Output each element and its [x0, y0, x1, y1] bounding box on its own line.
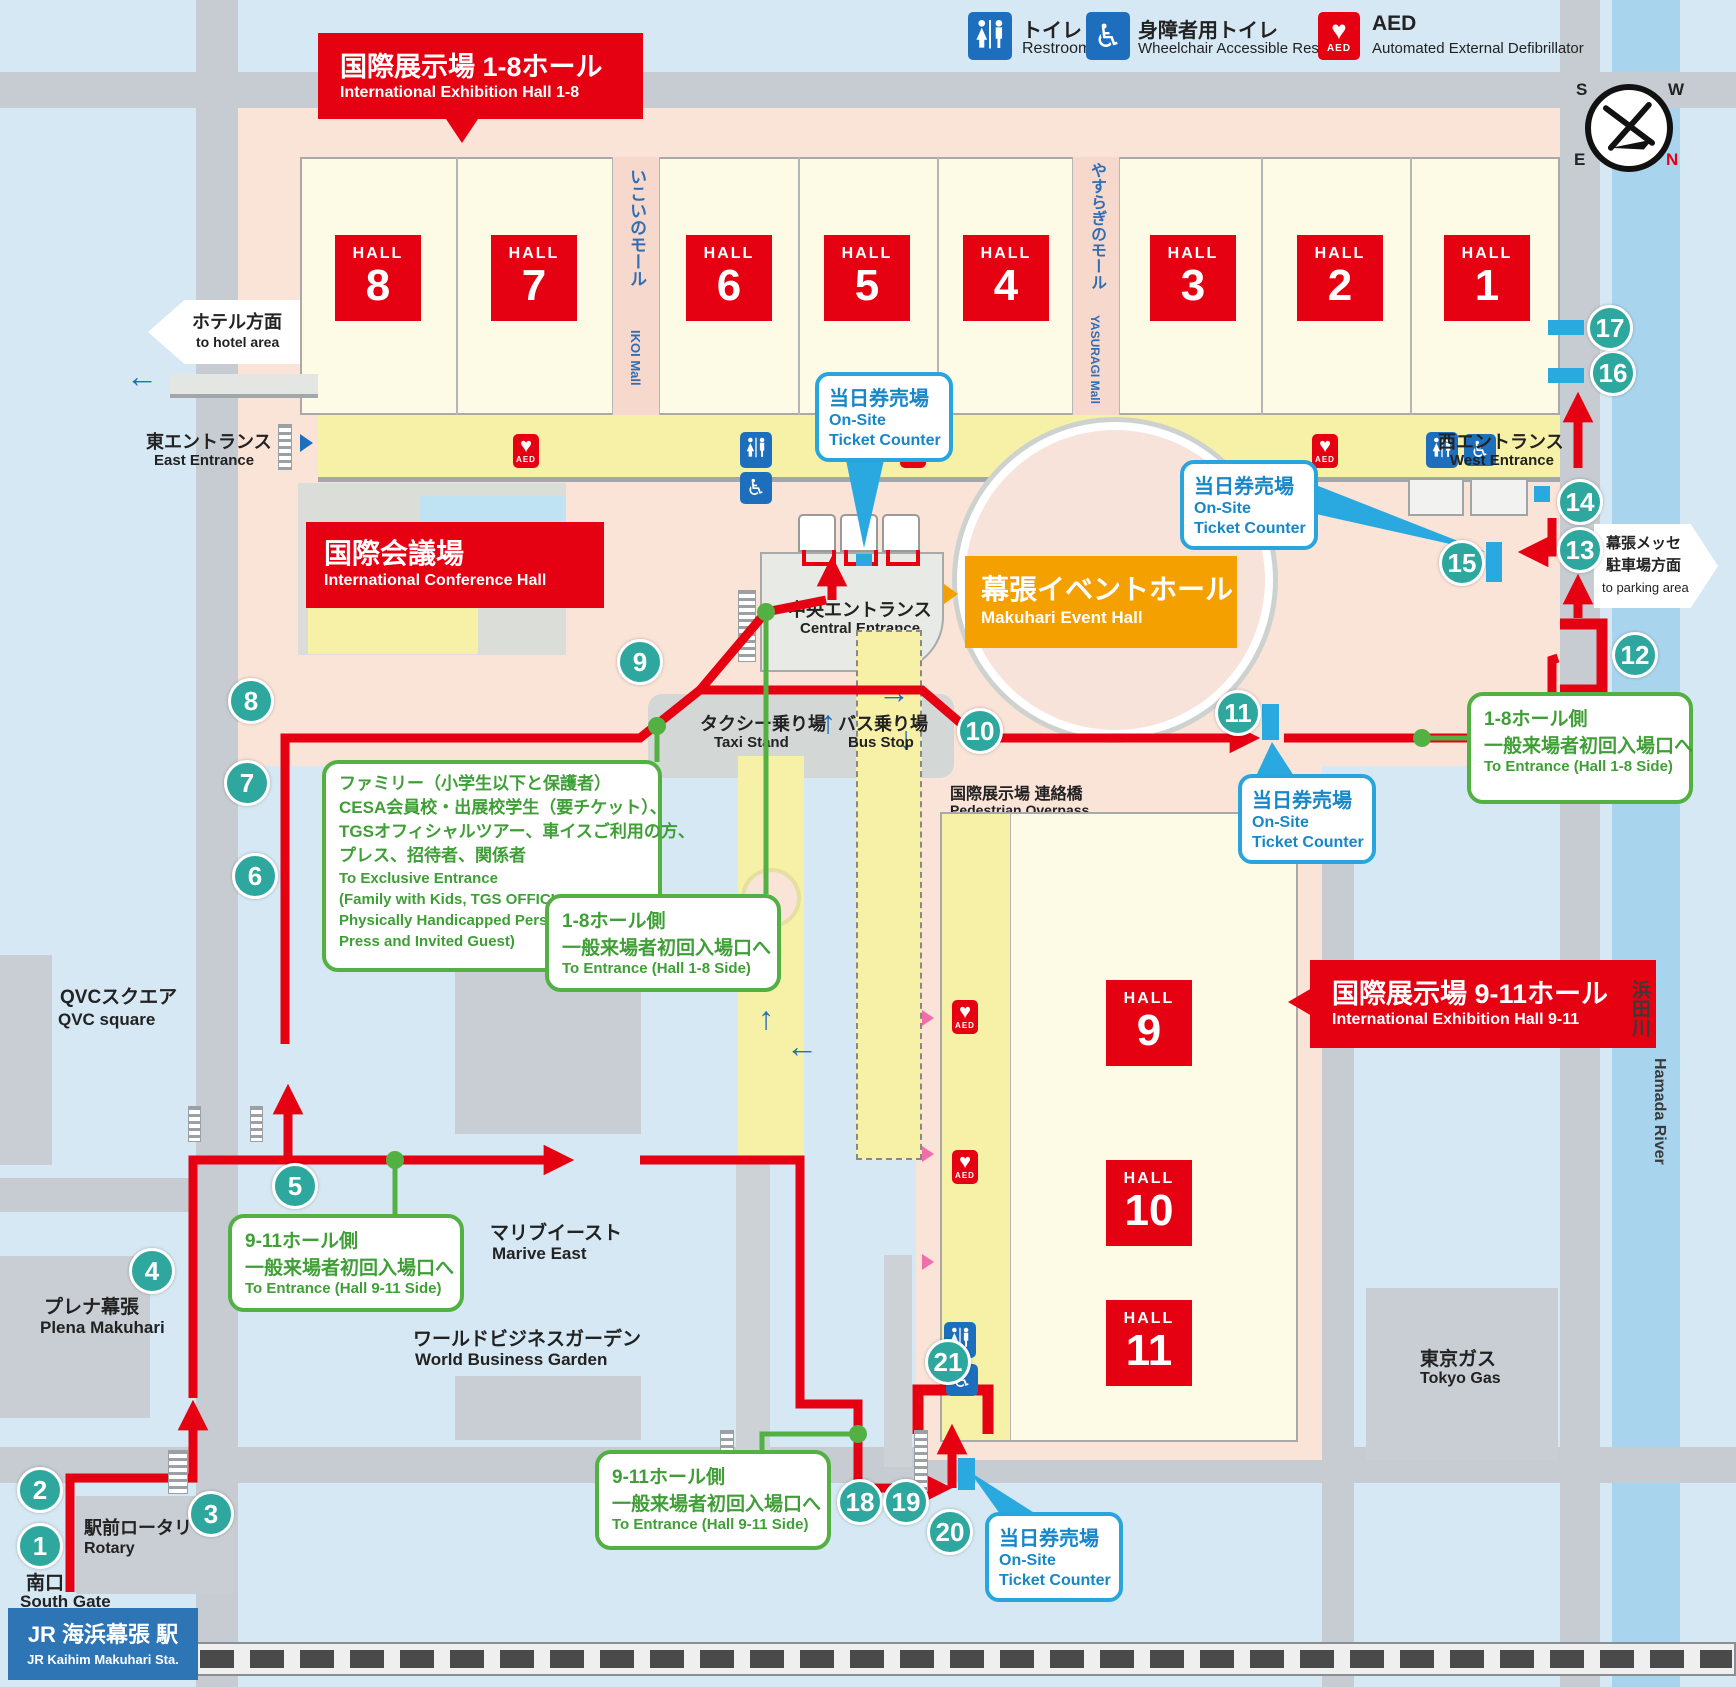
legend-restroom-label: トイレ: [1022, 14, 1082, 43]
route-marker-17: 17: [1587, 305, 1633, 351]
hall-7: HALL7: [491, 235, 577, 321]
route-marker-14: 14: [1557, 479, 1603, 525]
compass: [1585, 84, 1673, 172]
event-hall-pointer-icon: [944, 584, 958, 604]
ticket-booth: [958, 1458, 975, 1490]
marive-east-label-en: Marive East: [492, 1244, 587, 1264]
route-marker-3: 3: [188, 1491, 234, 1537]
legend-aed-label: AED: [1372, 12, 1416, 36]
walkway-east-column: [884, 1255, 912, 1467]
hotel-walkway: [170, 374, 318, 398]
ticket-booth: [1534, 486, 1550, 502]
hall911-banner: 国際展示場 9-11ホール International Exhibition H…: [1310, 960, 1656, 1048]
route-marker-15: 15: [1439, 540, 1485, 586]
hall-4: HALL4: [963, 235, 1049, 321]
route-marker-19: 19: [883, 1479, 929, 1525]
ticket-counter-callout-south: 当日券売場On-SiteTicket Counter: [985, 1512, 1123, 1602]
hall-2: HALL2: [1297, 235, 1383, 321]
route-marker-1: 1: [17, 1523, 63, 1569]
entrance-pointer-icon: [922, 1146, 934, 1162]
central-entrance-label: 中央エントランス: [788, 596, 932, 622]
entrance-hall911-box-south: 9-11ホール側一般来場者初回入場口へTo Entrance (Hall 9-1…: [595, 1450, 831, 1550]
central-stairs: [738, 590, 756, 662]
plena-label-en: Plena Makuhari: [40, 1318, 165, 1338]
route-marker-21: 21: [925, 1339, 971, 1385]
route-marker-7: 7: [224, 760, 270, 806]
route-marker-12: 12: [1612, 632, 1658, 678]
west-entrance-label-en: West Entrance: [1450, 452, 1554, 469]
ikoi-mall-label-en: IKOI Mall: [628, 330, 643, 386]
hotel-direction-sign: ホテル方面 to hotel area: [148, 300, 300, 364]
west-structure: [1470, 478, 1528, 516]
tokyo-gas-label: 東京ガス: [1420, 1344, 1496, 1371]
marive-east-label: マリブイースト: [490, 1218, 622, 1245]
route-marker-20: 20: [927, 1509, 973, 1555]
hall-6: HALL6: [686, 235, 772, 321]
wbg-label: ワールドビジネスガーデン: [413, 1324, 641, 1351]
ticket-booth: [1548, 368, 1584, 383]
bus-stop-label-en: Bus Stop: [848, 734, 914, 751]
entrance-hall911-box-west: 9-11ホール側一般来場者初回入場口へTo Entrance (Hall 9-1…: [228, 1214, 464, 1312]
route-marker-5: 5: [272, 1163, 318, 1209]
venue-map: いこいのモール IKOI Mall やすらぎのモール YASURAGI Mall…: [0, 0, 1736, 1687]
street-left: [196, 0, 238, 1687]
entrance-pointer-icon: [922, 1010, 934, 1026]
ticket-booth: [1486, 542, 1502, 582]
ticket-counter-callout-hall911: 当日券売場On-SiteTicket Counter: [1238, 774, 1376, 864]
east-entrance-pointer-icon: [300, 434, 313, 452]
hamada-river-label-en: Hamada River: [1650, 1058, 1668, 1165]
compass-e: E: [1574, 150, 1585, 170]
hall-1: HALL1: [1444, 235, 1530, 321]
hall-10: HALL10: [1106, 1160, 1192, 1246]
stairs: [188, 1106, 201, 1142]
parking-direction-sign: 幕張メッセ 駐車場方面 to parking area: [1594, 524, 1718, 608]
east-entrance-label-en: East Entrance: [154, 452, 254, 469]
wbg-building: [455, 1376, 641, 1440]
route-marker-6: 6: [232, 853, 278, 899]
hall-divider: [456, 157, 458, 415]
gate-marker: [886, 550, 920, 566]
hamada-river: [1612, 0, 1680, 1687]
up-arrow-icon: ↑: [758, 1002, 774, 1034]
compass-w: W: [1668, 80, 1684, 100]
qvc-label-en: QVC square: [58, 1010, 155, 1030]
hall-divider: [1410, 157, 1412, 415]
hall-divider: [798, 157, 800, 415]
stairs: [278, 424, 292, 470]
qvc-label: QVCスクエア: [60, 982, 177, 1009]
legend-restroom-label-en: Restroom: [1022, 40, 1091, 58]
stairs: [250, 1106, 263, 1142]
entrance-hall18-box-center: 1-8ホール側一般来場者初回入場口へTo Entrance (Hall 1-8 …: [545, 894, 781, 992]
central-ticket-booth: [856, 554, 872, 566]
hall-divider: [1261, 157, 1263, 415]
compass-s: S: [1576, 80, 1587, 100]
railway-dashes: [200, 1650, 1732, 1668]
route-marker-13: 13: [1557, 527, 1603, 573]
route-marker-11: 11: [1215, 690, 1261, 736]
gate: [882, 514, 920, 552]
event-hall-banner: 幕張イベントホール Makuhari Event Hall: [965, 556, 1237, 648]
taxi-stand-label-en: Taxi Stand: [714, 734, 789, 751]
street-right: [1560, 0, 1600, 1687]
aed-icon: ♥AED: [513, 434, 539, 468]
right-arrow-icon: →: [878, 676, 910, 708]
tokyo-gas-label-en: Tokyo Gas: [1420, 1370, 1501, 1388]
yasuragi-mall-label-en: YASURAGI Mall: [1088, 315, 1102, 404]
aed-icon: ♥AED: [952, 1150, 978, 1184]
wheelchair-icon: ♿: [740, 472, 772, 504]
bus-stop-label: バス乗り場: [838, 710, 928, 736]
qvc-building: [0, 955, 52, 1165]
left-arrow-icon: ←: [126, 360, 158, 392]
marive-east-building: [455, 972, 641, 1134]
hamada-river-label: 浜田川: [1626, 980, 1653, 1037]
overpass-label: 国際展示場 連絡橋: [950, 780, 1082, 804]
restroom-icon: [740, 432, 772, 468]
hall-8: HALL8: [335, 235, 421, 321]
left-arrow-icon: ←: [786, 1030, 818, 1062]
route-marker-8: 8: [228, 678, 274, 724]
west-structure: [1408, 478, 1464, 516]
entrance-pointer-icon: [922, 1254, 934, 1270]
hall-11: HALL11: [1106, 1300, 1192, 1386]
jr-station-sign: JR 海浜幕張 駅 JR Kaihim Makuhari Sta.: [8, 1608, 198, 1680]
crosswalk: [168, 1450, 188, 1494]
route-marker-16: 16: [1590, 350, 1636, 396]
aed-icon: ♥AED: [952, 1000, 978, 1034]
conference-hall-banner: 国際会議場 International Conference Hall: [306, 522, 604, 608]
route-marker-9: 9: [617, 639, 663, 685]
hall-5: HALL5: [824, 235, 910, 321]
wheelchair-icon: ♿: [1086, 12, 1130, 60]
gate-marker: [802, 550, 836, 566]
ticket-booth: [1262, 704, 1279, 740]
ticket-counter-callout-west: 当日券売場On-SiteTicket Counter: [1180, 460, 1318, 550]
street-qvc-south: [0, 1178, 196, 1212]
restroom-icon: [968, 12, 1012, 60]
route-marker-18: 18: [837, 1479, 883, 1525]
plena-label: プレナ幕張: [44, 1292, 139, 1319]
rotary-label-en: Rotary: [84, 1540, 135, 1558]
south-gate-label: 南口: [26, 1568, 64, 1595]
route-marker-4: 4: [129, 1248, 175, 1294]
ticket-booth: [1548, 320, 1584, 335]
gate: [798, 514, 836, 552]
east-entrance-label: 東エントランス: [146, 428, 272, 454]
hall18-banner: 国際展示場 1-8ホール International Exhibition Ha…: [318, 33, 643, 119]
street-top: [0, 72, 1736, 108]
wbg-label-en: World Business Garden: [415, 1350, 607, 1370]
aed-icon: ♥AED: [1318, 12, 1360, 60]
aed-icon: ♥AED: [1312, 434, 1338, 468]
legend-aed-label-en: Automated External Defibrillator: [1372, 40, 1584, 57]
compass-n: N: [1666, 150, 1678, 170]
ikoi-mall-label: いこいのモール: [624, 168, 649, 287]
hall911-banner-pointer: [1288, 988, 1312, 1016]
hall18-banner-pointer: [446, 119, 478, 143]
hall-3: HALL3: [1150, 235, 1236, 321]
route-marker-2: 2: [17, 1467, 63, 1513]
taxi-stand-label: タクシー乗り場: [700, 710, 826, 736]
gate: [840, 514, 878, 552]
ticket-counter-callout-central: 当日券売場On-SiteTicket Counter: [815, 372, 953, 462]
yasuragi-mall-label: やすらぎのモール: [1084, 162, 1108, 290]
hall-9: HALL9: [1106, 980, 1192, 1066]
legend-wheelchair-label: 身障者用トイレ: [1138, 14, 1278, 43]
entrance-hall18-box-west: 1-8ホール側一般来場者初回入場口へTo Entrance (Hall 1-8 …: [1467, 692, 1693, 804]
route-marker-10: 10: [957, 708, 1003, 754]
west-entrance-label: 西エントランス: [1438, 428, 1564, 454]
